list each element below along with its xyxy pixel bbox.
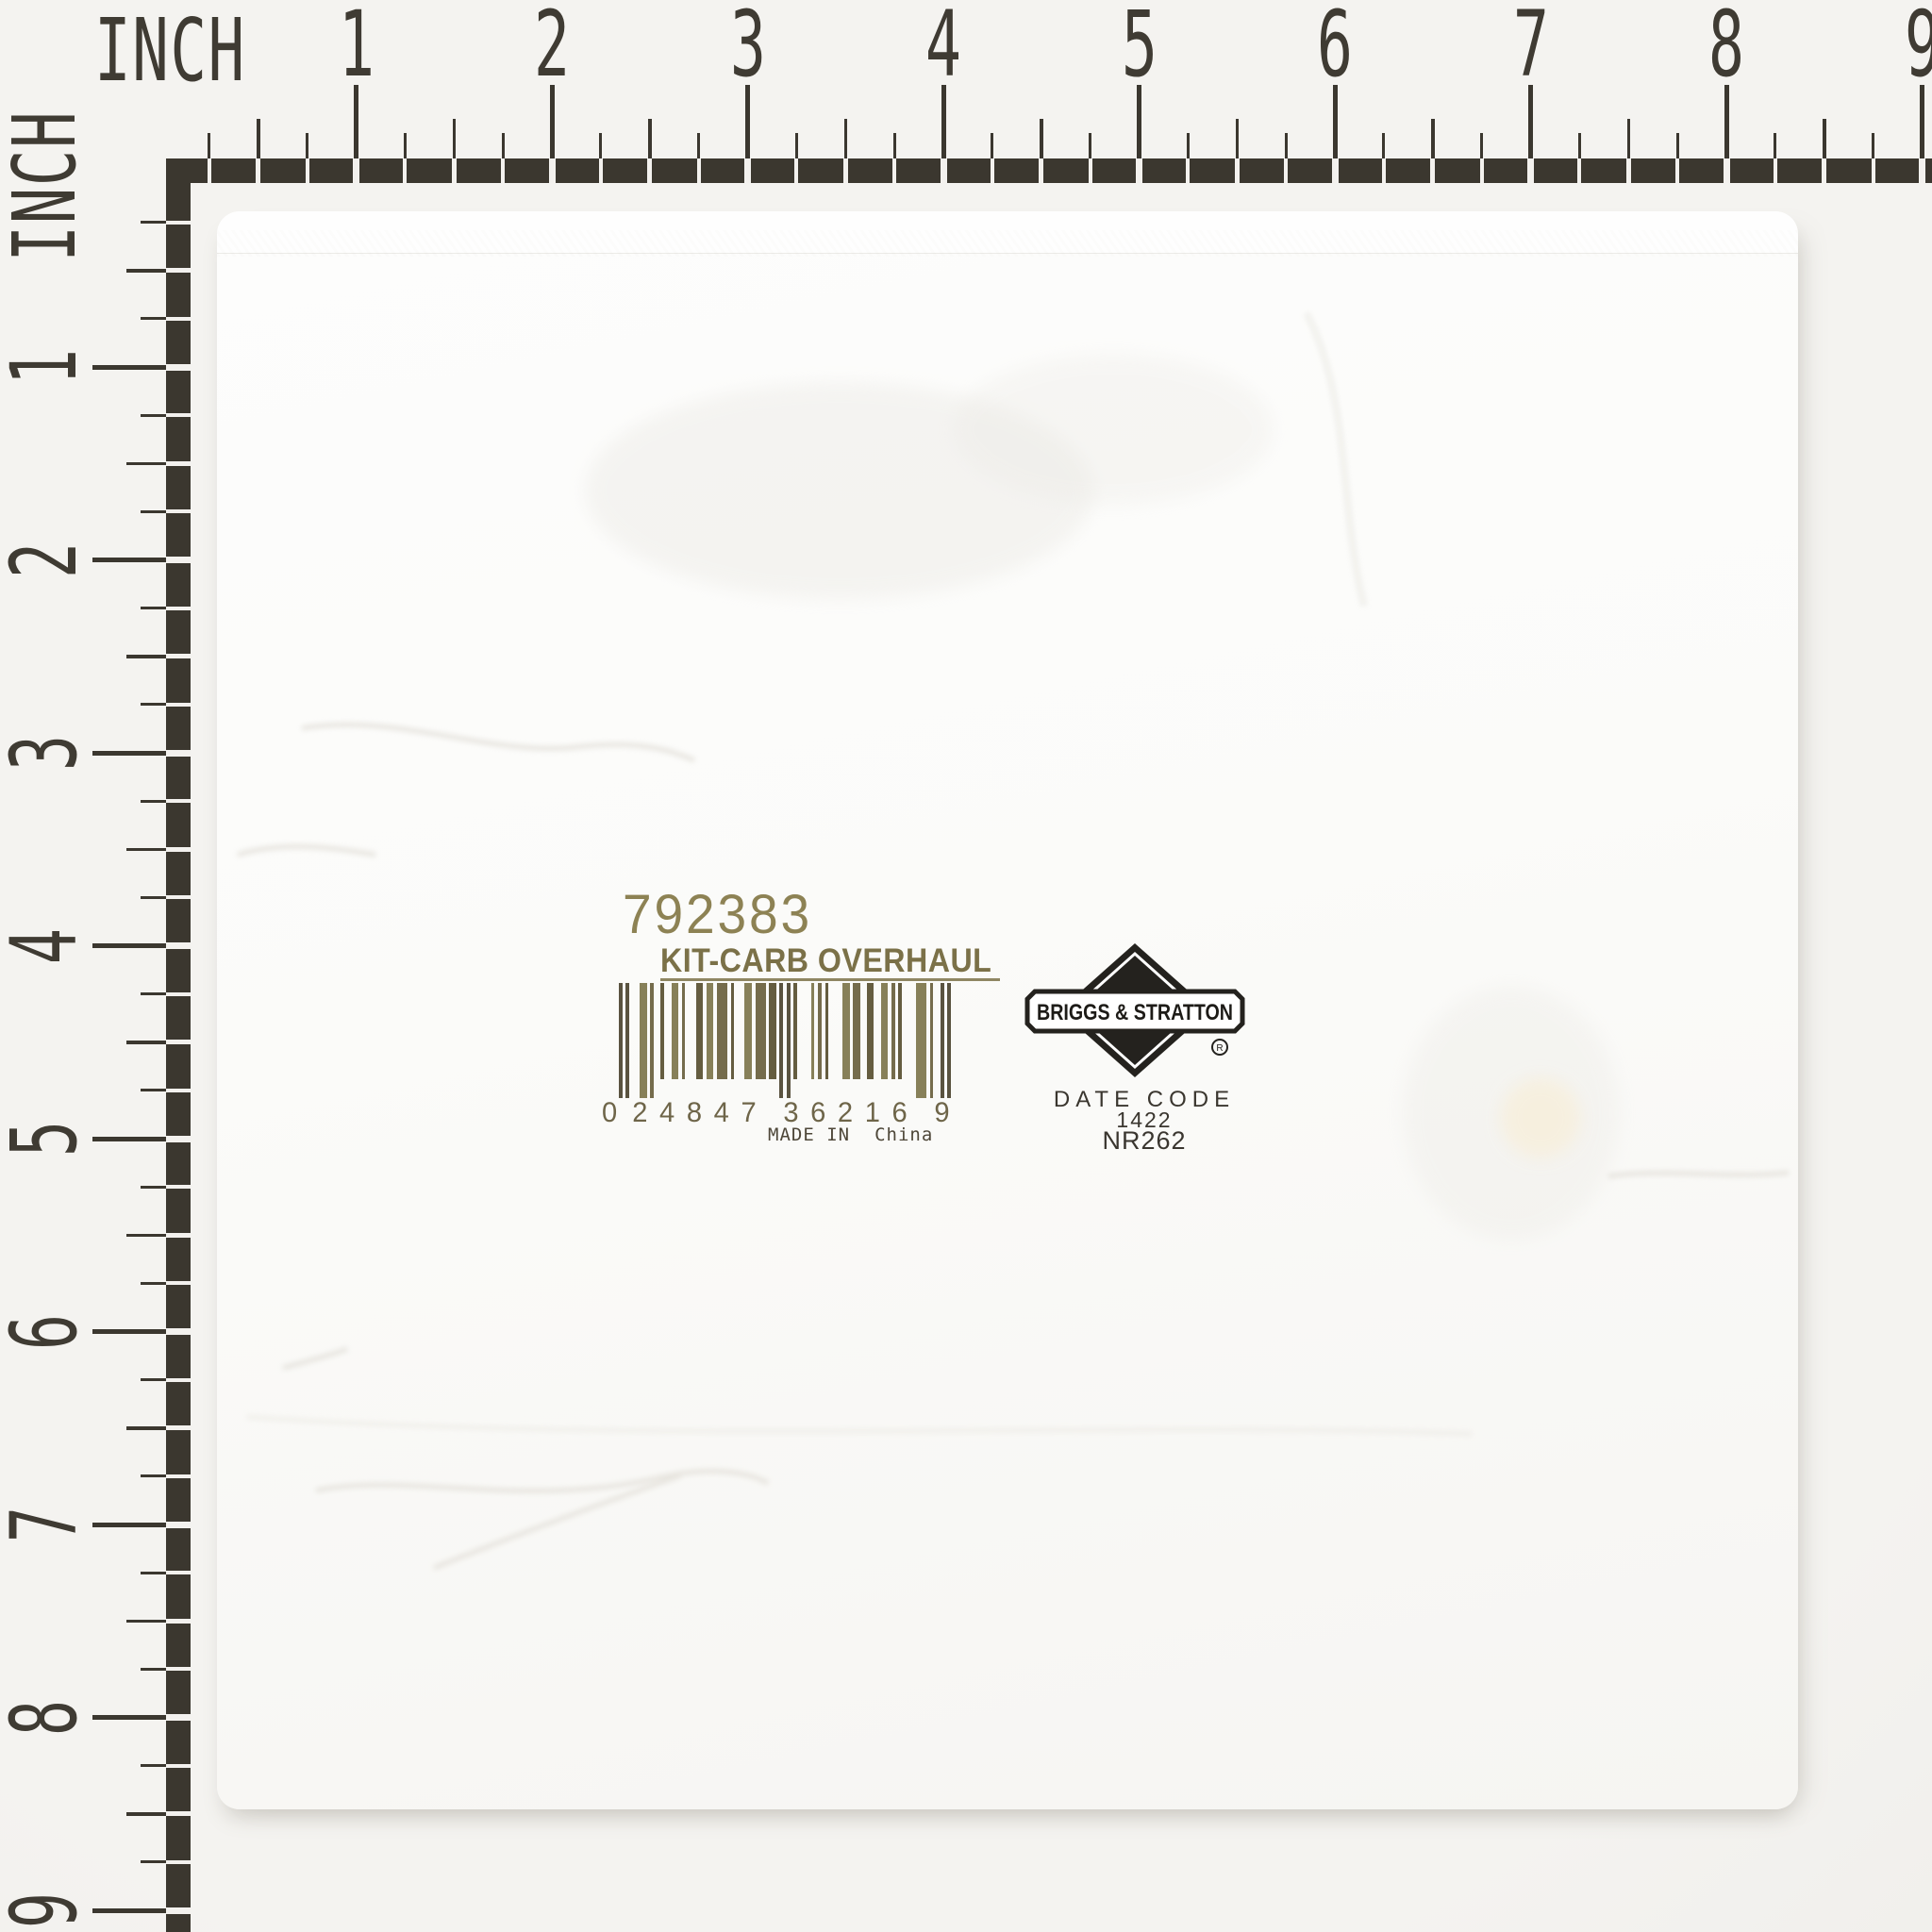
ruler-number: 3 (706, 2, 791, 87)
ruler-tick-gap (166, 895, 191, 899)
ruler-tick (126, 1234, 166, 1238)
ruler-number-glyph: 7 (0, 1507, 90, 1542)
ruler-number: 5 (1097, 2, 1182, 87)
ruler-tick (141, 1378, 166, 1381)
barcode-bar (916, 983, 926, 1098)
ruler-number: 1 (2, 325, 87, 409)
ruler-tick-gap (166, 1907, 191, 1914)
ruler-tick (141, 1764, 166, 1767)
ruler-tick (599, 133, 602, 158)
ruler-tick-gap (166, 1619, 191, 1624)
ruler-top-bar (166, 158, 1932, 183)
ruler-number-glyph: 9 (0, 1892, 90, 1928)
upc-barcode (619, 983, 951, 1100)
ruler-tick-gap (1332, 158, 1339, 183)
ruler-tick (1236, 119, 1240, 158)
barcode-bar (891, 983, 895, 1079)
barcode-bar (650, 983, 654, 1098)
ruler-tick-gap (166, 1860, 191, 1864)
ruler-number: 4 (901, 2, 986, 87)
ruler-tick-gap (306, 158, 309, 183)
ruler-tick (141, 1282, 166, 1285)
ruler-tick-gap (166, 1089, 191, 1092)
ruler-tick (126, 848, 166, 852)
ruler-tick (795, 133, 798, 158)
barcode-bar (640, 983, 646, 1098)
registered-mark: R (1216, 1043, 1223, 1054)
ruler-tick (1382, 133, 1385, 158)
ruler-tick-gap (549, 158, 556, 183)
ruler-number: 2 (2, 518, 87, 603)
ruler-tick-gap (166, 703, 191, 707)
ruler-tick-gap (1089, 158, 1092, 183)
ruler-number-glyph: 8 (1708, 0, 1744, 90)
ruler-tick-gap (647, 158, 652, 183)
ruler-number: 7 (1489, 2, 1574, 87)
ruler-tick (1040, 119, 1043, 158)
bs-banner-text: BRIGGS & STRATTON (1037, 1000, 1233, 1025)
ruler-tick-gap (991, 158, 994, 183)
ruler-number-glyph: 4 (0, 927, 90, 963)
ruler-left-bar (166, 158, 191, 1932)
ruler-unit-label-left: INCH (12, 63, 78, 308)
ruler-tick (502, 133, 505, 158)
product-photo-stage: 792383 KIT-CARB OVERHAUL 0 24847 36216 9… (0, 0, 1932, 1932)
ruler-tick-gap (166, 1281, 191, 1285)
ruler-tick (92, 1523, 166, 1527)
ruler-tick (141, 1668, 166, 1671)
made-in-line: MADE INChina (768, 1124, 933, 1145)
ruler-tick (92, 1908, 166, 1913)
ruler-tick (141, 1474, 166, 1477)
ruler-tick-gap (452, 158, 457, 183)
ruler-tick (141, 414, 166, 417)
ruler-tick (141, 510, 166, 513)
ruler-number: 8 (2, 1675, 87, 1760)
ruler-tick-gap (744, 158, 751, 183)
ruler-tick-gap (1872, 158, 1875, 183)
ruler-tick-gap (166, 1185, 191, 1189)
ruler-tick (141, 800, 166, 803)
ruler-tick (141, 607, 166, 609)
upc-lead-digit: 0 (602, 1097, 617, 1129)
ruler-tick (1480, 133, 1483, 158)
barcode-bar (947, 983, 951, 1098)
ruler-unit-label-top: INCH (94, 8, 246, 94)
made-in-label: MADE IN (768, 1124, 850, 1145)
ruler-tick-gap (166, 942, 191, 949)
ruler-tick (404, 133, 407, 158)
ruler-number: 5 (2, 1096, 87, 1181)
ruler-tick (1285, 133, 1288, 158)
ruler-tick (257, 119, 260, 158)
ruler-tick (1676, 133, 1679, 158)
made-in-value: China (874, 1124, 933, 1145)
ruler-number: 6 (1292, 2, 1377, 87)
ruler-tick-gap (166, 607, 191, 610)
ruler-tick (1431, 119, 1435, 158)
ruler-tick-gap (892, 158, 896, 183)
ruler-number: 2 (509, 2, 594, 87)
ruler-tick-gap (941, 158, 947, 183)
ruler-number: 1 (314, 2, 399, 87)
ruler-tick-gap (166, 268, 191, 273)
ruler-tick (1089, 133, 1091, 158)
ruler-tick (697, 133, 700, 158)
ruler-tick-gap (1039, 158, 1043, 183)
ruler-tick-gap (166, 413, 191, 417)
barcode-bar (660, 983, 664, 1079)
ruler-tick (453, 119, 457, 158)
ruler-tick-gap (166, 1571, 191, 1574)
ruler-tick-gap (1382, 158, 1386, 183)
ruler-tick-gap (166, 1474, 191, 1478)
ruler-number: 6 (2, 1290, 87, 1374)
barcode-bar (696, 983, 703, 1079)
ruler-tick-gap (166, 847, 191, 852)
ruler-number: 3 (2, 710, 87, 795)
ruler-tick-gap (1186, 158, 1190, 183)
date-code-block: DATE CODE 1422 NR262 (1041, 1090, 1248, 1152)
barcode-bar (717, 983, 727, 1079)
ruler-tick (1872, 133, 1874, 158)
upc-group1: 24847 (632, 1097, 768, 1129)
ruler-tick-gap (1724, 158, 1730, 183)
ruler-number-glyph: 9 (1904, 0, 1932, 90)
ruler-tick (1187, 133, 1190, 158)
ruler-tick-gap (843, 158, 848, 183)
brand-logo: BRIGGS & STRATTON R (1024, 941, 1250, 1083)
package-bag (217, 211, 1798, 1809)
ruler-tick-gap (166, 461, 191, 466)
ruler-tick (126, 1041, 166, 1044)
part-number: 792383 (623, 883, 812, 946)
ruler-tick-gap (1577, 158, 1581, 183)
barcode-bar (941, 983, 944, 1098)
ruler-tick (92, 751, 166, 756)
ruler-tick (126, 1426, 166, 1430)
ruler-number-glyph: 1 (0, 349, 90, 385)
ruler-tick (92, 1715, 166, 1720)
ruler-tick-gap (166, 654, 191, 658)
barcode-bar (867, 983, 874, 1079)
ruler-tick-gap (166, 1764, 191, 1768)
ruler-tick-gap (166, 1811, 191, 1816)
barcode-bar (707, 983, 713, 1079)
ruler-tick (1627, 119, 1631, 158)
barcode-bar (625, 983, 629, 1098)
ruler-tick (141, 1860, 166, 1863)
ruler-tick-gap (1919, 158, 1925, 183)
barcode-bar (842, 983, 849, 1079)
ruler-number-glyph: 2 (0, 541, 90, 577)
ruler-tick (208, 133, 210, 158)
ruler-number-glyph: 6 (0, 1313, 90, 1349)
ruler-tick (126, 1620, 166, 1624)
ruler-tick (141, 317, 166, 320)
ruler-tick-gap (166, 509, 191, 513)
ruler-tick (126, 462, 166, 466)
barcode-bar (898, 983, 902, 1079)
ruler-tick-gap (403, 158, 407, 183)
barcode-bar (811, 983, 815, 1079)
ruler-tick-gap (1822, 158, 1826, 183)
ruler-number-glyph: 4 (925, 0, 961, 90)
description-underline (660, 978, 1000, 981)
ruler-number: 9 (2, 1868, 87, 1932)
ruler-tick-gap (501, 158, 505, 183)
ruler-tick (141, 221, 166, 224)
ruler-tick-gap (166, 1040, 191, 1044)
ruler-tick (141, 703, 166, 706)
barcode-bar (682, 983, 686, 1079)
ruler-tick (92, 1137, 166, 1141)
ruler-tick (141, 1186, 166, 1189)
ruler-tick-gap (166, 1378, 191, 1382)
ruler-tick (1823, 119, 1826, 158)
ruler-tick-gap (256, 158, 260, 183)
ruler-number-glyph: 6 (1317, 0, 1353, 90)
ruler-tick-gap (166, 1667, 191, 1671)
ruler-number-glyph: 5 (0, 1121, 90, 1157)
ruler-tick-gap (166, 1714, 191, 1721)
ruler-tick-gap (1430, 158, 1435, 183)
ruler-tick-gap (166, 364, 191, 371)
ruler-tick-gap (353, 158, 359, 183)
barcode-bar (853, 983, 859, 1079)
batch-code: NR262 (1041, 1129, 1248, 1152)
ruler-number: 7 (2, 1482, 87, 1567)
ruler-tick (1774, 133, 1776, 158)
ruler-number: 4 (2, 904, 87, 989)
barcode-bar (825, 983, 829, 1079)
ruler-tick (893, 133, 896, 158)
ruler-tick (92, 558, 166, 562)
ruler-number-glyph: 3 (729, 0, 765, 90)
ruler-number-glyph: 2 (534, 0, 570, 90)
ruler-tick (306, 133, 308, 158)
ruler-tick-gap (166, 557, 191, 563)
ruler-tick (92, 1329, 166, 1334)
barcode-bar (818, 983, 822, 1079)
ruler-number-glyph: 1 (338, 0, 374, 90)
ruler-tick (126, 269, 166, 273)
ruler-tick (141, 1572, 166, 1574)
upc-check-digit: 9 (934, 1097, 949, 1129)
ruler-tick (141, 992, 166, 995)
ruler-tick-gap (166, 317, 191, 321)
ruler-tick-gap (794, 158, 798, 183)
barcode-bar (787, 983, 791, 1098)
ruler-tick-gap (1480, 158, 1484, 183)
ruler-tick (648, 119, 652, 158)
barcode-bar (779, 983, 783, 1098)
ruler-number-glyph: 7 (1512, 0, 1548, 90)
ruler-tick-gap (1136, 158, 1142, 183)
ruler-tick-gap (697, 158, 701, 183)
ruler-tick-gap (1774, 158, 1777, 183)
part-description: KIT-CARB OVERHAUL (660, 942, 991, 980)
barcode-bar (619, 983, 623, 1098)
ruler-tick (92, 943, 166, 948)
ruler-tick-gap (166, 1136, 191, 1142)
ruler-tick-gap (1527, 158, 1534, 183)
ruler-tick-gap (166, 1233, 191, 1238)
barcode-bar (793, 983, 797, 1079)
ruler-tick (1578, 133, 1581, 158)
ruler-tick-gap (166, 992, 191, 996)
ruler-tick (141, 896, 166, 899)
ruler-tick-gap (599, 158, 603, 183)
ruler-tick-gap (166, 1522, 191, 1528)
ruler-tick-gap (166, 1425, 191, 1430)
barcode-bar (769, 983, 775, 1079)
barcode-bar (756, 983, 766, 1079)
ruler-tick (991, 133, 993, 158)
ruler-tick (844, 119, 848, 158)
ruler-tick (141, 1089, 166, 1091)
ruler-tick-gap (208, 158, 211, 183)
ruler-tick (126, 1812, 166, 1816)
ruler-tick-gap (1235, 158, 1240, 183)
ruler-number: 8 (1684, 2, 1769, 87)
barcode-bar (881, 983, 888, 1079)
ruler-tick-gap (166, 1328, 191, 1335)
ruler-tick (126, 655, 166, 658)
ruler-tick-gap (1675, 158, 1679, 183)
ruler-tick (92, 365, 166, 370)
ruler-number-glyph: 8 (0, 1699, 90, 1735)
ruler-tick-gap (166, 799, 191, 803)
ruler-tick-gap (1284, 158, 1288, 183)
ruler-tick-gap (1626, 158, 1631, 183)
barcode-bar (930, 983, 934, 1098)
ruler-number-glyph: 3 (0, 735, 90, 771)
bag-seam-texture (217, 230, 1798, 257)
ruler-tick-gap (166, 750, 191, 757)
barcode-bar (744, 983, 751, 1079)
barcode-bar (672, 983, 678, 1079)
ruler-number: 9 (1880, 2, 1932, 87)
ruler-number-glyph: 5 (1121, 0, 1157, 90)
barcode-bar (731, 983, 735, 1079)
ruler-tick-gap (166, 221, 191, 225)
